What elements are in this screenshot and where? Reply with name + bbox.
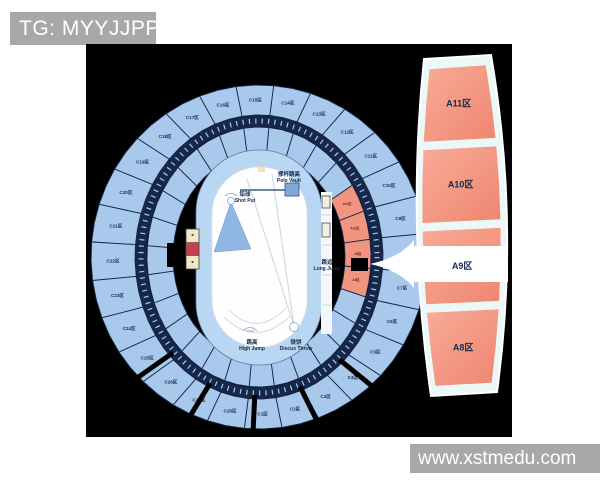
outer-section-label: C3区 (320, 393, 331, 400)
zone-label: A8区 (453, 343, 474, 353)
zone-label: A10区 (448, 180, 474, 190)
entrance-tunnel-marker (351, 258, 368, 271)
field-event-label-pole-vault: 撑杆跳高Pole Vault (277, 170, 301, 184)
stadium-seating-map: C1区C2区C3区C4区C5区C6区C7区C8区C9区C10区C11区C12区C… (0, 0, 600, 480)
sand-pit (322, 196, 330, 208)
outer-section-label: C7区 (397, 285, 408, 292)
outer-section-label: C11区 (364, 153, 377, 160)
shot-put-circle (228, 198, 235, 205)
outer-section-label: C26区 (164, 379, 177, 386)
highlighted-section-label: A11区 (343, 201, 353, 206)
outer-section-label: C18区 (159, 133, 172, 140)
outer-section-label: C19区 (136, 159, 149, 166)
outer-section-label: C22区 (107, 257, 120, 264)
podium-dot (192, 234, 194, 236)
outer-section-label: C24区 (123, 325, 136, 332)
outer-section-label: C6区 (387, 318, 398, 325)
outer-section-label: C23区 (111, 292, 124, 299)
podium-dot (192, 261, 194, 263)
outer-section-label: C9区 (395, 215, 406, 222)
discus-circle (290, 323, 299, 332)
outer-section-label: C17区 (186, 114, 199, 121)
sand-pit (322, 223, 330, 237)
entrance-tunnel-marker (167, 243, 184, 267)
outer-section-label: C25区 (141, 354, 154, 361)
outer-section-label: C5区 (370, 348, 381, 355)
outer-section-label: C20区 (119, 189, 132, 196)
zone-label: A9区 (452, 261, 473, 271)
highlighted-section-label: A10区 (350, 225, 360, 230)
highlighted-section-label: A9区 (354, 251, 362, 256)
outer-section-label: C28区 (224, 407, 237, 414)
highlighted-section-label: A8区 (352, 277, 360, 282)
outer-section-label: C21区 (109, 222, 122, 229)
zoomed-zone-panel: A11区A10区A9区A8区 (409, 55, 508, 396)
outer-section-label: C12区 (341, 128, 354, 135)
entrance-gap (253, 395, 255, 433)
watermark-url: www.xstmedu.com (418, 448, 576, 469)
outer-section-label: C15区 (249, 97, 262, 104)
outer-section-label: C13区 (313, 110, 326, 117)
zone-label: A11区 (446, 99, 471, 109)
pole-vault-pit (285, 183, 299, 196)
outer-section-label: C10区 (382, 182, 395, 189)
outer-section-label: C2区 (290, 406, 301, 413)
podium-marker-center (186, 243, 199, 256)
outer-section-label: C14区 (281, 100, 294, 107)
watermark-bar: www.xstmedu.com (410, 444, 600, 473)
field-mark (258, 166, 265, 172)
outer-section-label: C16区 (216, 101, 229, 108)
outer-section-label: C1区 (257, 410, 268, 417)
